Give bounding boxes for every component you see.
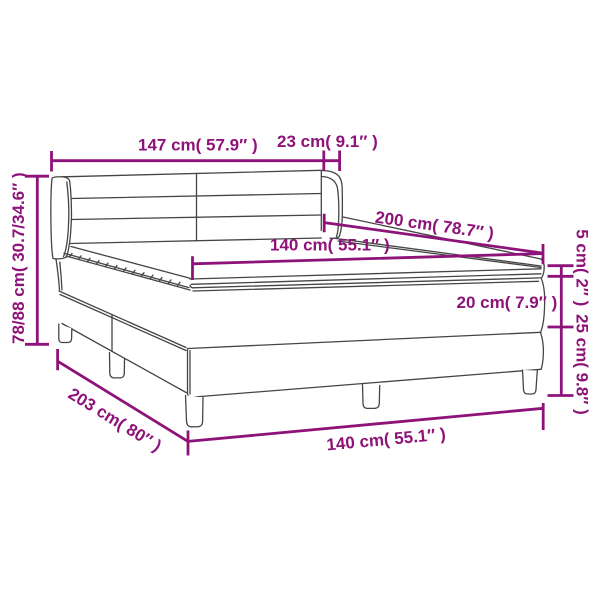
svg-text:78/88 cm( 30.7/34.6″ ): 78/88 cm( 30.7/34.6″ ) [9, 172, 28, 344]
svg-text:5 cm( 2″ ): 5 cm( 2″ ) [572, 229, 591, 306]
svg-text:147 cm( 57.9″ ): 147 cm( 57.9″ ) [138, 136, 258, 155]
svg-text:23 cm( 9.1″ ): 23 cm( 9.1″ ) [277, 132, 378, 151]
svg-text:20 cm( 7.9″ ): 20 cm( 7.9″ ) [457, 293, 558, 312]
svg-text:140 cm( 55.1″ ): 140 cm( 55.1″ ) [270, 236, 390, 255]
svg-text:25 cm( 9.8″ ): 25 cm( 9.8″ ) [572, 314, 591, 415]
